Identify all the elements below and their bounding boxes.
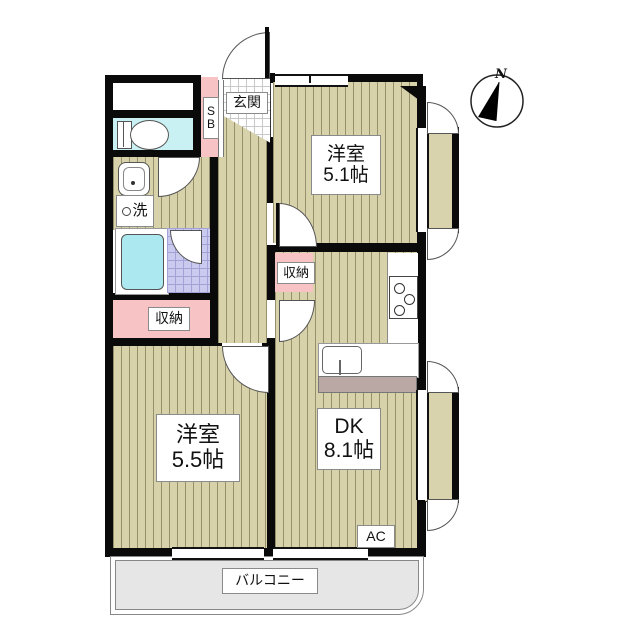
- balcony-label: バルコニー: [222, 568, 318, 594]
- wall-toilet-bottom: [113, 150, 201, 157]
- washbasin-icon: [118, 162, 150, 196]
- wall-room1-bottom: [313, 243, 425, 252]
- hall-storage-label: 収納: [277, 262, 315, 284]
- entry-door-swing: [222, 32, 270, 79]
- toilet-tank-line: [123, 121, 124, 147]
- toilet-bowl-icon: [130, 120, 169, 150]
- wall-left: [105, 75, 113, 557]
- dining-kitchen-label: DK 8.1帖: [317, 408, 381, 470]
- kitchen-sink-icon: [322, 346, 362, 374]
- laundry-label: 洗: [116, 195, 154, 227]
- hall-floor: [218, 110, 267, 343]
- bay-window-1-floor: [425, 131, 452, 231]
- window-bay-2-inner: [416, 390, 429, 500]
- bay-window-2-bottom-arc: [427, 499, 459, 531]
- entrance-label: 玄関: [226, 92, 268, 114]
- washing-machine-icon: [122, 207, 131, 216]
- shoe-box-label: SB: [203, 97, 219, 139]
- bay-window-2-top-arc: [427, 361, 459, 393]
- window-balcony-left: [172, 547, 264, 560]
- stove-icon: [389, 276, 418, 319]
- wall-toilet-right: [193, 75, 201, 162]
- window-bay-1-inner: [416, 128, 429, 232]
- entry-door-leaf: [265, 27, 269, 78]
- left-storage-label: 収納: [148, 307, 190, 331]
- bay-window-2-floor: [425, 390, 452, 502]
- compass-north-label: N: [492, 67, 510, 83]
- wall-hall-left: [210, 157, 218, 343]
- window-room1-top: [275, 74, 348, 87]
- bay-window-1-bottom-arc: [427, 228, 459, 260]
- bathtub-icon: [121, 234, 164, 290]
- kitchen-tap-icon: [339, 360, 341, 375]
- floor-plan: 玄関 SB 洗 収納 収納 洋室 5.1帖 洋室 5.5帖 DK 8.1帖 AC…: [0, 0, 640, 640]
- air-conditioner-label: AC: [357, 525, 395, 548]
- utility-closet-floor: [113, 83, 193, 110]
- western-room-large-label: 洋室 5.5帖: [156, 414, 240, 482]
- bay-window-1-top-arc: [427, 102, 459, 134]
- kitchen-counter-front: [318, 376, 417, 393]
- window-room1-top-mullion: [309, 74, 311, 83]
- bay-window-2-glass: [452, 387, 459, 503]
- wall-closet-bottom: [113, 110, 201, 118]
- wall-top-left: [105, 75, 201, 83]
- bay-window-1-glass: [452, 127, 459, 233]
- compass: N: [468, 70, 530, 130]
- western-room-small-label: 洋室 5.1帖: [311, 135, 381, 195]
- window-balcony-right: [273, 547, 368, 560]
- wall-storage-bottom: [105, 338, 222, 346]
- room1-door-leaf: [276, 203, 279, 245]
